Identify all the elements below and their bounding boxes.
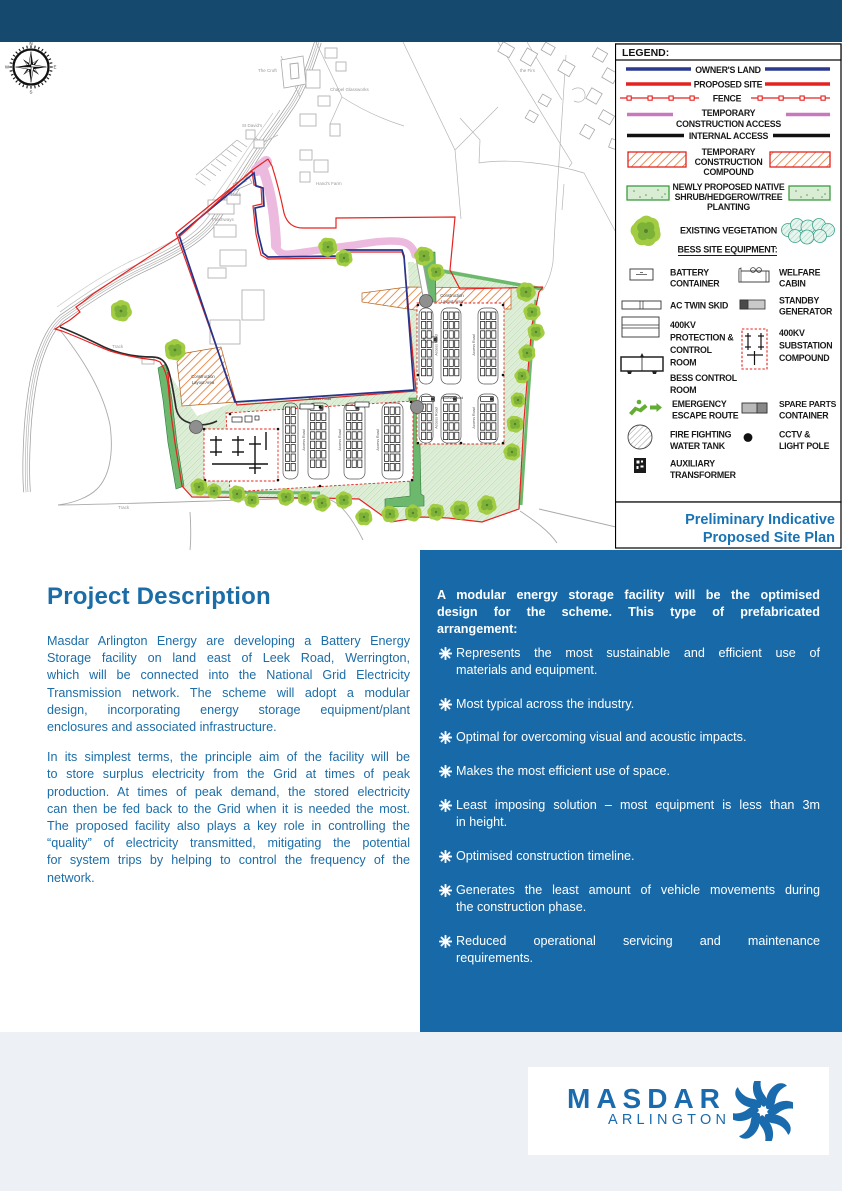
svg-text:GENERATOR: GENERATOR <box>779 307 833 317</box>
svg-text:STANDBY: STANDBY <box>779 296 819 306</box>
svg-text:Track: Track <box>230 192 242 197</box>
svg-text:The Croft: The Croft <box>258 68 278 73</box>
svg-text:PROTECTION &: PROTECTION & <box>670 333 734 343</box>
svg-text:the Firs: the Firs <box>520 68 536 73</box>
svg-text:CCTV &: CCTV & <box>779 430 811 440</box>
svg-text:AC TWIN SKID: AC TWIN SKID <box>670 301 728 311</box>
svg-text:Access Road: Access Road <box>309 397 331 401</box>
svg-text:Access Road: Access Road <box>441 396 463 400</box>
svg-text:OWNER'S LAND: OWNER'S LAND <box>695 65 761 75</box>
svg-text:ROOM: ROOM <box>670 385 696 395</box>
svg-text:COMPOUND: COMPOUND <box>703 167 753 177</box>
svg-text:LIGHT POLE: LIGHT POLE <box>779 441 830 451</box>
svg-text:EMERGENCY: EMERGENCY <box>672 399 727 409</box>
svg-text:Access Road: Access Road <box>435 407 439 428</box>
svg-text:TEMPORARY: TEMPORARY <box>702 147 756 157</box>
svg-text:Layout Area: Layout Area <box>192 380 215 385</box>
svg-text:WELFARE: WELFARE <box>779 268 821 278</box>
svg-text:PROPOSED SITE: PROPOSED SITE <box>694 80 763 90</box>
svg-text:EXISTING VEGETATION: EXISTING VEGETATION <box>680 226 777 236</box>
svg-text:Access Road: Access Road <box>302 429 306 450</box>
svg-text:ESCAPE ROUTE: ESCAPE ROUTE <box>672 411 739 421</box>
svg-text:N: N <box>29 42 32 46</box>
svg-text:CONTAINER: CONTAINER <box>779 411 829 421</box>
svg-text:Track: Track <box>118 505 130 510</box>
svg-text:St David's: St David's <box>242 123 263 128</box>
svg-text:ROOM: ROOM <box>670 358 696 368</box>
svg-text:Construction: Construction <box>191 374 215 379</box>
svg-text:BESS CONTROL: BESS CONTROL <box>670 373 738 383</box>
svg-text:BATTERY: BATTERY <box>670 268 709 278</box>
svg-text:SUBSTATION: SUBSTATION <box>779 341 832 351</box>
svg-text:Access Road: Access Road <box>376 429 380 450</box>
svg-text:400KV: 400KV <box>670 320 696 330</box>
svg-text:Access Road: Access Road <box>338 429 342 450</box>
svg-text:COMPOUND: COMPOUND <box>779 353 829 363</box>
svg-text:TEMPORARY: TEMPORARY <box>702 108 756 118</box>
svg-text:FIRE FIGHTING: FIRE FIGHTING <box>670 430 732 440</box>
svg-text:Access Road: Access Road <box>472 407 476 428</box>
svg-text:Access Road: Access Road <box>435 334 439 355</box>
svg-text:Access Road: Access Road <box>472 334 476 355</box>
svg-text:E: E <box>53 65 56 70</box>
svg-text:400KV: 400KV <box>779 328 805 338</box>
svg-text:Chapel Glassworks: Chapel Glassworks <box>330 87 370 92</box>
svg-text:SPARE PARTS: SPARE PARTS <box>779 399 837 409</box>
svg-text:Track: Track <box>112 344 124 349</box>
svg-text:PLANTING: PLANTING <box>707 202 750 212</box>
svg-text:WATER TANK: WATER TANK <box>670 441 726 451</box>
svg-text:CONTAINER: CONTAINER <box>670 279 720 289</box>
svg-text:NEWLY PROPOSED NATIVE: NEWLY PROPOSED NATIVE <box>673 182 785 192</box>
svg-text:CONTROL: CONTROL <box>670 345 713 355</box>
svg-text:Hand's Farm: Hand's Farm <box>316 181 342 186</box>
svg-text:TRANSFORMER: TRANSFORMER <box>670 470 737 480</box>
svg-text:AUXILIARY: AUXILIARY <box>670 459 715 469</box>
svg-text:Preliminary Indicative: Preliminary Indicative <box>685 512 835 528</box>
svg-text:SHRUB/HEDGEROW/TREE: SHRUB/HEDGEROW/TREE <box>675 192 783 202</box>
svg-text:INTERNAL ACCESS: INTERNAL ACCESS <box>689 131 769 141</box>
svg-text:Construction: Construction <box>440 293 464 298</box>
svg-text:S: S <box>29 90 32 95</box>
svg-text:CONSTRUCTION: CONSTRUCTION <box>695 157 763 167</box>
svg-text:FENCE: FENCE <box>713 94 742 104</box>
svg-text:LEGEND:: LEGEND: <box>622 47 669 59</box>
svg-text:CONSTRUCTION ACCESS: CONSTRUCTION ACCESS <box>676 119 781 129</box>
svg-text:BESS SITE EQUIPMENT:: BESS SITE EQUIPMENT: <box>677 245 777 255</box>
svg-text:CABIN: CABIN <box>779 279 806 289</box>
svg-text:Proposed Site Plan: Proposed Site Plan <box>703 530 835 546</box>
svg-text:Freshways: Freshways <box>212 217 235 222</box>
